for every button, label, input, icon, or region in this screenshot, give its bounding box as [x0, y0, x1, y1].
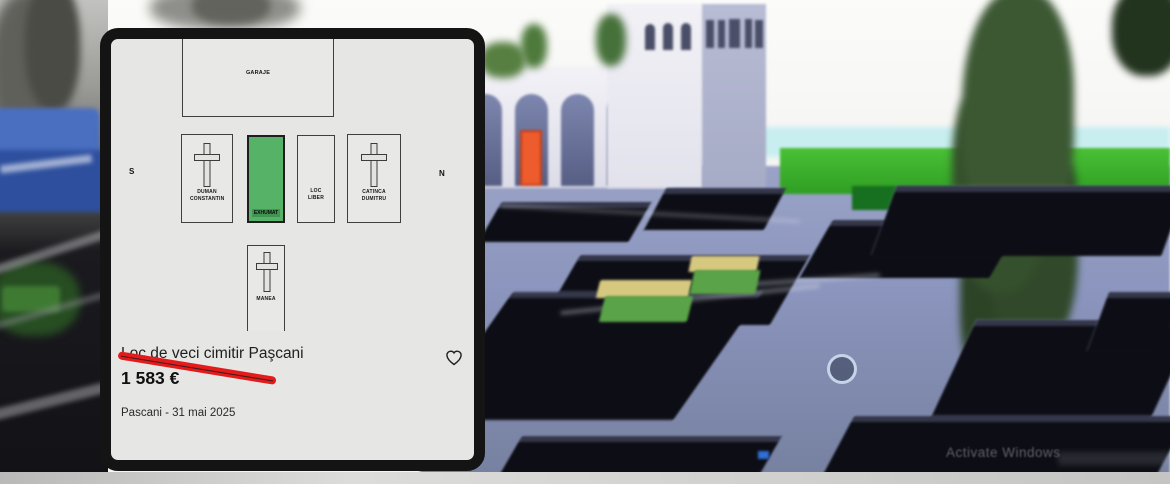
window-slot	[755, 20, 763, 48]
bottom-edge-strip	[0, 472, 1170, 484]
favorite-button[interactable]	[444, 347, 464, 367]
window-slot	[706, 20, 714, 48]
listing-card[interactable]: GARAJE S N DUMAN CONSTANTIN EXHUMAT LOC …	[100, 28, 485, 471]
map-plot-loc-liber: LOC LIBER	[297, 135, 335, 223]
cross-icon	[256, 252, 278, 292]
map-plot-exhumat-highlighted[interactable]: EXHUMAT	[247, 135, 285, 223]
orange-door	[520, 130, 542, 186]
arched-window	[681, 23, 691, 50]
screenshot-root: Activate Windows GARAJE S N DUMAN CONSTA…	[0, 0, 1170, 484]
cross-icon	[361, 143, 387, 187]
cross-icon	[194, 143, 220, 187]
listing-location-date: Pascani - 31 mai 2025	[121, 407, 235, 419]
window-slot	[718, 20, 725, 48]
plot-label: LOC LIBER	[298, 188, 334, 202]
map-plot-catinca-dumitru: CATINCA DUMITRU	[347, 134, 401, 223]
arch-opening	[515, 94, 548, 186]
chapel-tower-face	[702, 4, 766, 188]
compass-south: S	[129, 167, 134, 176]
activate-windows-watermark: Activate Windows	[946, 445, 1061, 460]
tree-silhouette	[25, 0, 80, 110]
plot-label: DUMAN CONSTANTIN	[182, 189, 232, 203]
arch-opening	[561, 94, 594, 186]
plot-label: MANEA	[248, 296, 284, 303]
scene-cursor-ring	[827, 354, 857, 384]
map-plot-duman-constantin: DUMAN CONSTANTIN	[181, 134, 233, 223]
compass-north: N	[439, 169, 445, 178]
window-slot	[745, 19, 752, 48]
bench-seat	[689, 270, 760, 294]
watermark-smudge	[1058, 452, 1170, 465]
window-slot	[729, 19, 740, 48]
bench-seat	[599, 296, 693, 322]
listing-price: 1 583 €	[121, 368, 179, 389]
arched-window	[663, 23, 673, 50]
blue-marker-dot	[758, 451, 769, 459]
arched-window	[645, 24, 655, 50]
plot-label: CATINCA DUMITRU	[348, 189, 400, 203]
small-tree	[480, 42, 526, 78]
garage-label: GARAJE	[183, 70, 333, 77]
small-tree	[596, 14, 626, 66]
heart-icon	[444, 347, 464, 367]
tomb-slab	[644, 188, 786, 230]
tomb-slab	[871, 186, 1170, 256]
plot-label: EXHUMAT	[252, 209, 281, 217]
listing-card-content: GARAJE S N DUMAN CONSTANTIN EXHUMAT LOC …	[111, 39, 474, 460]
map-plot-manea: MANEA	[247, 245, 285, 331]
map-garage-block: GARAJE	[182, 39, 334, 117]
